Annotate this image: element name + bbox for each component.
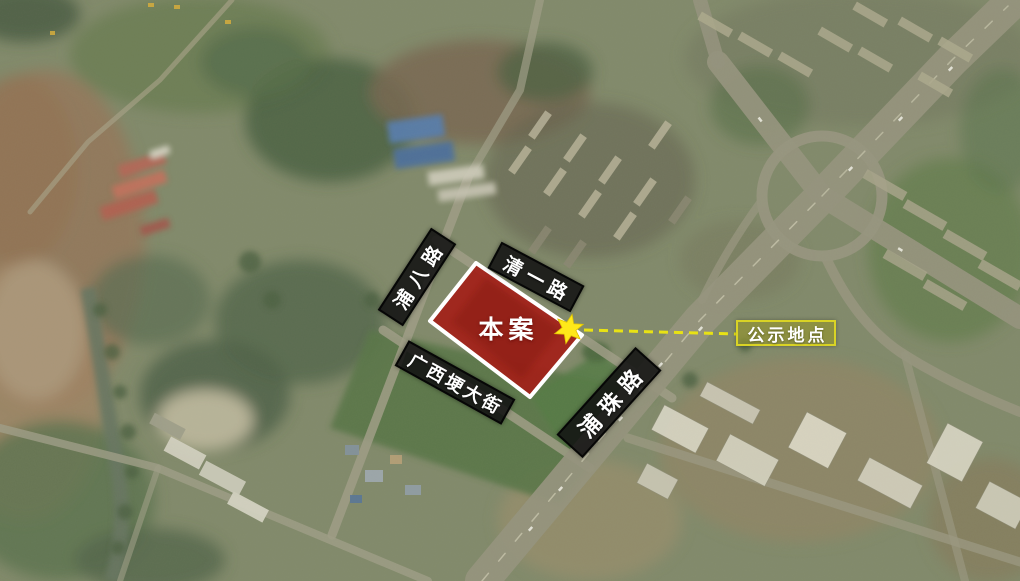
leader-dashed-line [584, 330, 736, 334]
notice-location-label: 公示地点 [745, 321, 828, 346]
site-parcel-label: 本案 [456, 312, 556, 344]
site-location-map: 浦八路 清一路 广西埂大街 浦珠路 本案 公示地点 [0, 0, 1020, 581]
notice-location-box: 公示地点 [736, 320, 836, 346]
annotation-overlay [0, 0, 1020, 581]
